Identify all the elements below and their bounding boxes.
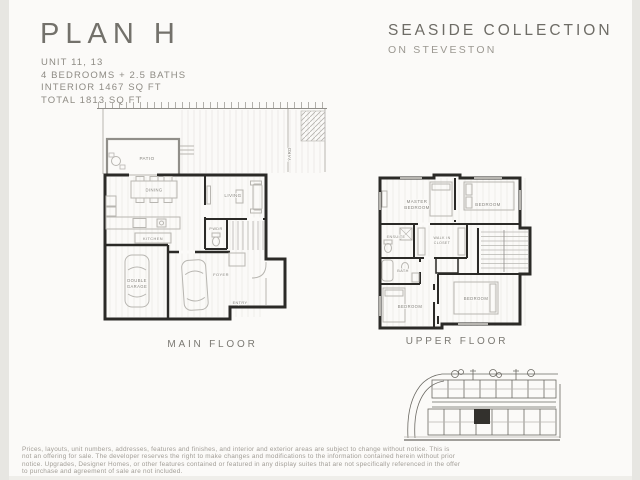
bath-label: BATH: [397, 269, 408, 273]
garage-label-line1: DOUBLE: [127, 278, 147, 283]
patio-label: PATIO: [139, 156, 154, 161]
scan-edge-left: [0, 0, 9, 480]
bedrooms-line: 4 BEDROOMS + 2.5 BATHS: [41, 70, 186, 83]
bedroom-bottom-right-label: BEDROOM: [464, 296, 489, 301]
garage-label-line2: GARAGE: [127, 284, 147, 289]
site-plan-icon: [404, 369, 560, 440]
master-bedroom-label-line2: BEDROOM: [404, 205, 430, 210]
powder-label: PWDR: [209, 227, 222, 231]
collection-title: SEASIDE COLLECTION: [388, 22, 613, 40]
main-floor-caption: MAIN FLOOR: [95, 339, 330, 350]
tree-icons: [452, 369, 535, 380]
main-floor-plan-svg: PATIO YARD: [95, 102, 330, 334]
disclaimer-line: notice. Upgrades, Designer Homes, or oth…: [22, 461, 626, 468]
collection-subtitle: ON STEVESTON: [388, 44, 613, 56]
scan-edge-bottom: [9, 476, 632, 480]
patio-table-icon: [112, 157, 121, 166]
bedroom-bottom-left-label: BEDROOM: [398, 304, 423, 309]
main-floor-plan: PATIO YARD: [95, 102, 330, 339]
plan-details: UNIT 11, 13 4 BEDROOMS + 2.5 BATHS INTER…: [41, 57, 186, 107]
walk-in-closet-label-line1: WALK IN: [433, 236, 450, 240]
yard-label: YARD: [287, 147, 292, 160]
living-label: LIVING: [224, 193, 241, 198]
bedroom-top-right-label: BEDROOM: [475, 202, 501, 207]
ensuite-label: ENSUITE: [387, 235, 406, 239]
unit-line: UNIT 11, 13: [41, 57, 186, 70]
disclaimer-line: Prices, layouts, unit numbers, addresses…: [22, 446, 626, 453]
master-bedroom-label-line1: MASTER: [407, 199, 428, 204]
floor-texture: [105, 177, 265, 317]
site-keyplan-svg: [398, 364, 566, 444]
foyer-label: FOYER: [213, 272, 229, 277]
brochure-page: PLAN H UNIT 11, 13 4 BEDROOMS + 2.5 BATH…: [0, 0, 640, 480]
upper-floor-plan-svg: MASTER BEDROOM BEDROOM ENSUITE WALK IN C…: [372, 166, 542, 334]
disclaimer-line: to purchase and agreement of sale are no…: [22, 468, 626, 475]
site-keyplan: [398, 364, 566, 449]
highlighted-unit-marker: [474, 409, 490, 424]
fence-hatch-line: [97, 102, 327, 109]
disclaimer-text: Prices, layouts, unit numbers, addresses…: [22, 446, 626, 475]
hatch-patch: [301, 111, 325, 141]
upper-floor-caption: UPPER FLOOR: [372, 336, 542, 347]
page-title: PLAN H: [40, 18, 181, 51]
scan-edge-right: [632, 0, 640, 480]
entry-label: ENTRY: [233, 301, 248, 305]
interior-area-line: INTERIOR 1467 SQ FT: [41, 82, 186, 95]
upper-floor-plan: MASTER BEDROOM BEDROOM ENSUITE WALK IN C…: [372, 166, 542, 339]
walk-in-closet-label-line2: CLOSET: [434, 241, 451, 245]
kitchen-label: KITCHEN: [143, 236, 163, 241]
collection-header: SEASIDE COLLECTION ON STEVESTON: [388, 22, 613, 56]
dining-label: DINING: [145, 188, 162, 193]
disclaimer-line: not an offering for sale. The developer …: [22, 453, 626, 460]
